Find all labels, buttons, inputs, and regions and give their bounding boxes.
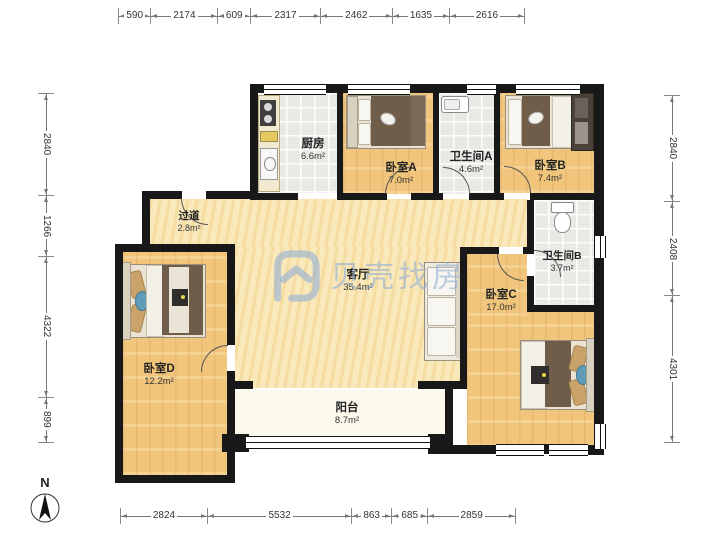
sink-icon [260, 148, 278, 180]
bed-accent [531, 366, 549, 384]
room-label-kitchen: 厨房6.6m² [301, 137, 325, 163]
room-label-bedroom-c: 卧室C17.0m² [485, 288, 516, 314]
wall [227, 252, 235, 345]
wall [250, 84, 258, 200]
wall [460, 247, 499, 254]
bed-bedroom-d [126, 264, 206, 338]
wall [142, 191, 150, 252]
wall [452, 445, 496, 454]
window [549, 444, 588, 456]
window [264, 84, 326, 95]
wall [460, 247, 467, 388]
wall [337, 193, 387, 200]
wall [594, 84, 604, 239]
wall [227, 371, 235, 483]
compass-needle-icon [28, 489, 62, 527]
room-label-hallway: 过道2.8m² [177, 210, 200, 234]
window [496, 444, 544, 456]
wall [494, 84, 500, 200]
bed-bedroom-a [346, 95, 426, 149]
bed-accent [172, 289, 188, 306]
room-label-bath-b: 卫生间B3.7m² [542, 250, 581, 274]
kitchen-counter [258, 95, 280, 192]
wall [527, 276, 534, 312]
room-label-living: 客厅35.4m² [343, 268, 373, 294]
room-label-balcony: 阳台8.7m² [335, 401, 359, 427]
window [516, 84, 580, 95]
window [348, 84, 410, 95]
room-label-bath-a: 卫生间A4.6m² [450, 150, 493, 176]
headboard-bedroom-d [122, 262, 131, 340]
wall [527, 305, 604, 312]
bed-bedroom-c [520, 340, 590, 410]
floorplan: 厨房6.6m² 卧室A7.0m² 卫生间A4.6m² 卧室B7.4m² 过道2.… [0, 0, 720, 540]
toilet-icon [551, 202, 574, 233]
wardrobe-icon [571, 93, 594, 151]
wall [411, 193, 443, 200]
compass: N [26, 476, 64, 534]
wall [115, 244, 123, 483]
room-label-bedroom-a: 卧室A7.0m² [385, 161, 416, 187]
wall [115, 475, 235, 483]
wall [142, 191, 182, 199]
wall [527, 200, 534, 252]
wall [530, 193, 604, 200]
wall [445, 388, 453, 440]
wall [469, 193, 504, 200]
window-balcony [246, 436, 430, 449]
wall [594, 256, 604, 426]
counter-item [260, 131, 278, 142]
wall [115, 244, 235, 252]
compass-north-label: N [26, 476, 64, 489]
floorplan-page: 59021746092317246216352616 2824553286368… [0, 0, 720, 540]
bed-bedroom-b [505, 95, 573, 149]
window [594, 424, 606, 449]
window [594, 236, 606, 258]
window [467, 84, 496, 95]
stove-icon [260, 100, 276, 126]
washbasin-icon [441, 96, 469, 113]
room-label-bedroom-b: 卧室B7.4m² [534, 159, 565, 185]
room-label-bedroom-d: 卧室D12.2m² [143, 362, 174, 388]
wall [433, 84, 439, 200]
wall [337, 84, 343, 200]
